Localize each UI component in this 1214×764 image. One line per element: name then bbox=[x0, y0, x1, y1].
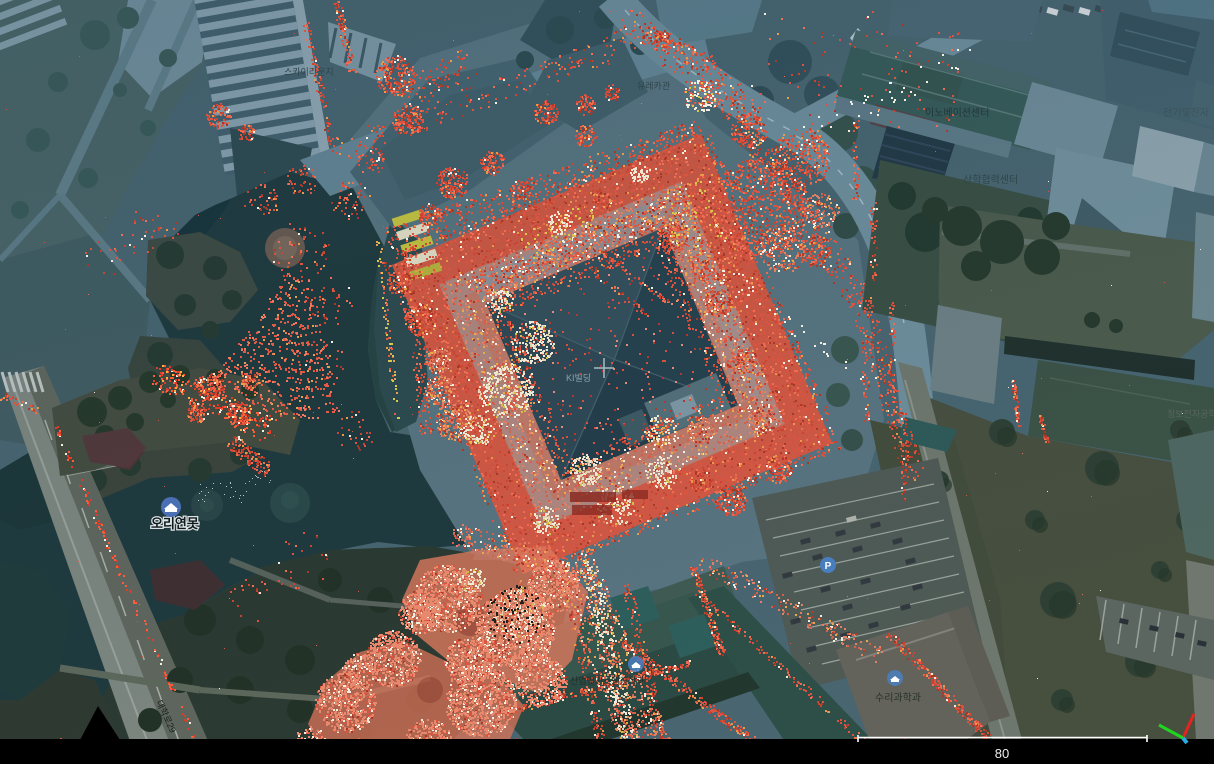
svg-text:KI빌딩: KI빌딩 bbox=[566, 373, 591, 383]
svg-text:유레카관: 유레카관 bbox=[637, 81, 670, 91]
svg-text:스카이라운지: 스카이라운지 bbox=[284, 67, 334, 77]
svg-text:수리과학과: 수리과학과 bbox=[875, 692, 921, 704]
svg-text:이노베이션센터: 이노베이션센터 bbox=[925, 107, 989, 119]
svg-text:산업및시스템공학과: 산업및시스템공학과 bbox=[570, 675, 645, 686]
svg-text:오리연못: 오리연못 bbox=[151, 516, 199, 531]
svg-text:80: 80 bbox=[995, 746, 1009, 761]
svg-text:전기및전자: 전기및전자 bbox=[1163, 107, 1209, 119]
svg-text:산학협력센터: 산학협력센터 bbox=[963, 173, 1018, 186]
svg-text:정보전자공학: 정보전자공학 bbox=[1167, 409, 1214, 419]
